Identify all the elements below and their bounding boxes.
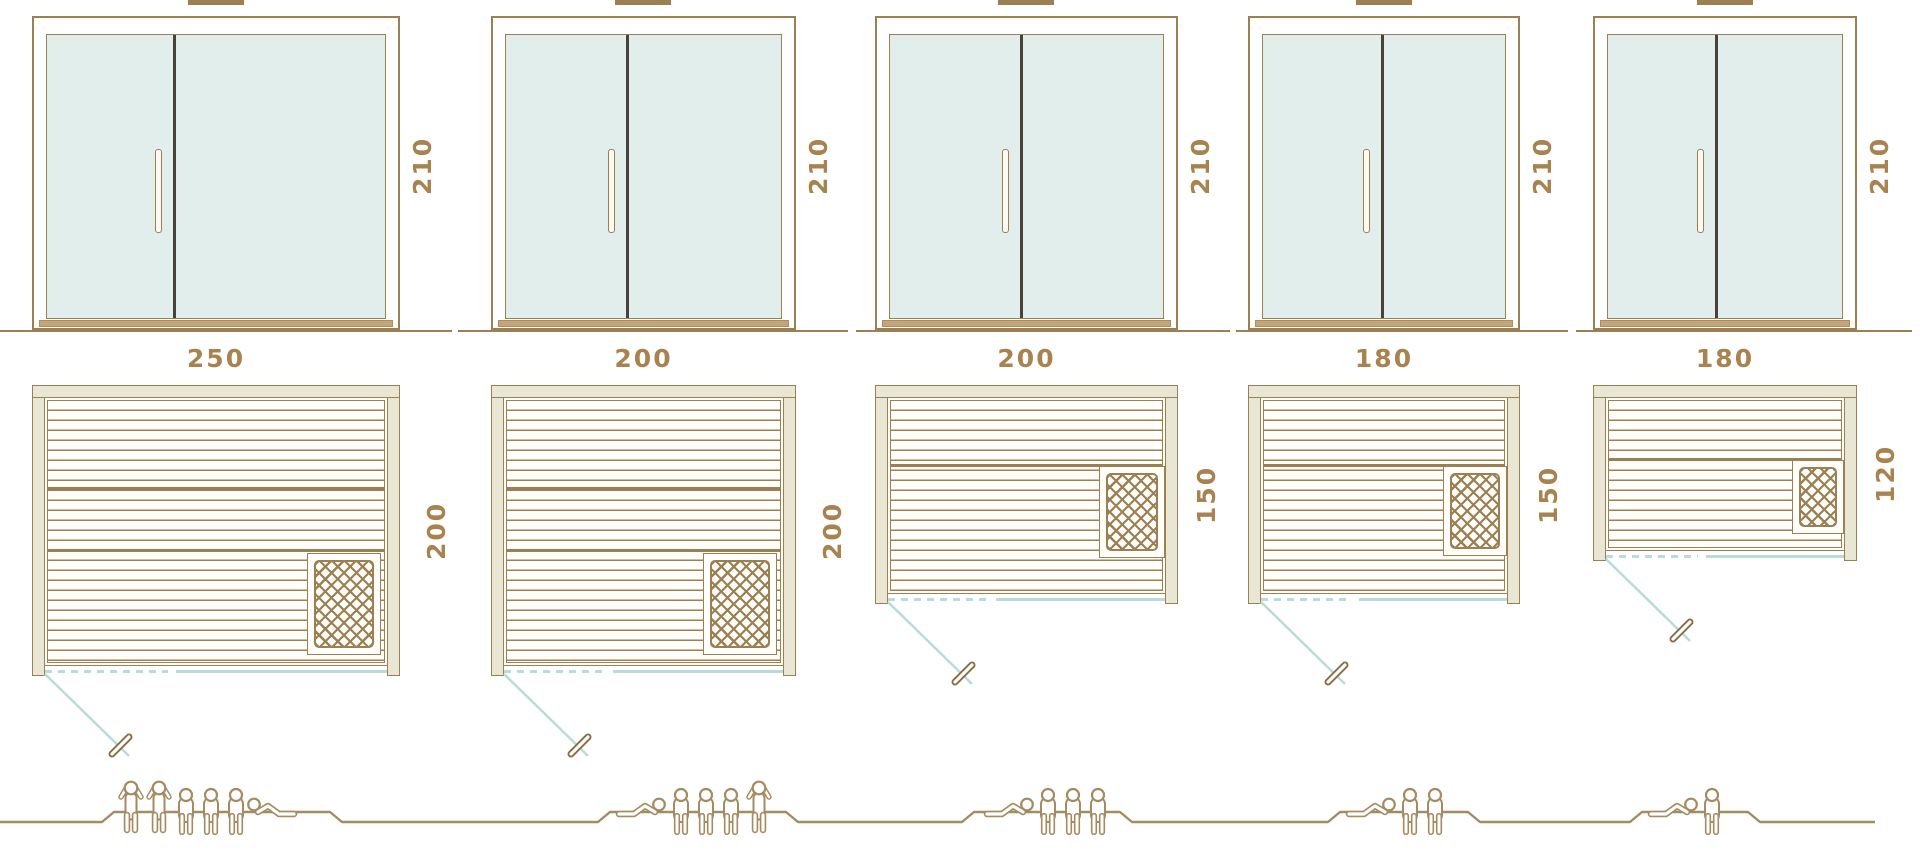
wall-right xyxy=(1507,385,1520,604)
wall-right xyxy=(387,385,400,676)
wall-right xyxy=(1844,385,1857,561)
person-sitting-icon xyxy=(700,789,712,832)
glass-double-door xyxy=(46,34,386,319)
fixed-glass-line xyxy=(176,670,387,673)
heater-grid-icon xyxy=(1450,473,1500,549)
width-label: 180 xyxy=(1355,344,1413,373)
door-handle-icon xyxy=(155,149,162,233)
sauna-column-3: 210 200 xyxy=(875,0,1178,856)
person-sitting-icon xyxy=(1042,789,1054,832)
person-sitting-icon xyxy=(1404,789,1416,832)
heater xyxy=(1099,466,1165,558)
person-standing-icon xyxy=(149,782,169,830)
vent-cap-icon xyxy=(998,0,1054,5)
depth-label: 120 xyxy=(1871,445,1900,503)
height-dimension: 210 xyxy=(804,118,834,214)
heater xyxy=(307,553,381,655)
sauna-column-2: 210 200 xyxy=(491,0,796,856)
capacity-row xyxy=(0,772,1920,856)
elevation-view xyxy=(1248,16,1520,330)
depth-dimension: 150 xyxy=(1192,447,1222,543)
wall-right xyxy=(1165,385,1178,604)
width-dimension: 180 xyxy=(1248,344,1520,373)
ground-line xyxy=(458,330,848,332)
sauna-column-4: 210 180 xyxy=(1248,0,1520,856)
door-handle-icon xyxy=(1697,149,1704,233)
height-dimension: 210 xyxy=(1865,118,1895,214)
height-dimension: 210 xyxy=(1528,118,1558,214)
plan-view xyxy=(1248,385,1520,606)
door-gap-line xyxy=(1381,35,1384,318)
vent-cap-icon xyxy=(615,0,671,5)
sauna-column-1: 210 250 xyxy=(32,0,400,856)
door-swing xyxy=(1248,594,1408,694)
door-sill xyxy=(39,320,393,327)
person-sitting-icon xyxy=(675,789,687,832)
width-label: 200 xyxy=(614,344,672,373)
plan-view xyxy=(32,385,400,678)
door-swing xyxy=(491,666,651,766)
depth-label: 200 xyxy=(422,502,451,560)
door-gap-line xyxy=(173,35,176,318)
height-label: 210 xyxy=(1186,137,1215,195)
plan-view xyxy=(491,385,796,678)
person-standing-icon xyxy=(749,782,769,830)
sauna-column-5: 210 180 xyxy=(1593,0,1857,856)
depth-dimension: 200 xyxy=(422,483,452,579)
height-dimension: 210 xyxy=(1186,118,1216,214)
height-label: 210 xyxy=(804,137,833,195)
heater xyxy=(1792,460,1844,534)
width-dimension: 250 xyxy=(32,344,400,373)
elevation-view xyxy=(875,16,1178,330)
door-handle-icon xyxy=(608,149,615,233)
plan-interior xyxy=(1605,397,1845,551)
depth-label: 150 xyxy=(1192,466,1221,524)
door-gap-line xyxy=(626,35,629,318)
width-label: 180 xyxy=(1696,344,1754,373)
plan-interior xyxy=(1260,397,1508,594)
vent-cap-icon xyxy=(1356,0,1412,5)
person-sitting-icon xyxy=(205,789,217,832)
depth-dimension: 200 xyxy=(818,483,848,579)
person-sitting-icon xyxy=(1706,789,1718,832)
width-dimension: 200 xyxy=(875,344,1178,373)
width-label: 200 xyxy=(997,344,1055,373)
ground-line xyxy=(0,330,452,332)
depth-label: 200 xyxy=(818,502,847,560)
person-sitting-icon xyxy=(1429,789,1441,832)
ground-line xyxy=(1576,330,1912,332)
glass-double-door xyxy=(889,34,1164,319)
heater-grid-icon xyxy=(314,560,374,648)
heater xyxy=(1443,466,1507,556)
person-reclining-icon xyxy=(1651,799,1697,814)
depth-dimension: 120 xyxy=(1871,426,1901,522)
ground-line xyxy=(1236,330,1568,332)
plan-interior xyxy=(503,397,784,666)
heater xyxy=(703,553,777,655)
heater-grid-icon xyxy=(1799,467,1837,527)
person-sitting-icon xyxy=(725,789,737,832)
person-reclining-icon xyxy=(987,799,1033,814)
wall-right xyxy=(783,385,796,676)
elevation-view xyxy=(491,16,796,330)
door-swing xyxy=(32,666,192,766)
door-sill xyxy=(1600,320,1850,327)
door-gap-line xyxy=(1020,35,1023,318)
door-sill xyxy=(1255,320,1513,327)
door-swing xyxy=(1593,551,1753,651)
door-sill xyxy=(498,320,789,327)
height-label: 210 xyxy=(408,137,437,195)
vent-cap-icon xyxy=(1697,0,1753,5)
door-handle-icon xyxy=(1363,149,1370,233)
height-label: 210 xyxy=(1865,137,1894,195)
door-swing xyxy=(875,594,1035,694)
plan-view xyxy=(875,385,1178,606)
door-sill xyxy=(882,320,1171,327)
width-dimension: 180 xyxy=(1593,344,1857,373)
depth-dimension: 150 xyxy=(1534,447,1564,543)
glass-double-door xyxy=(505,34,782,319)
heater-grid-icon xyxy=(1106,473,1158,551)
person-reclining-icon xyxy=(619,799,665,814)
person-standing-icon xyxy=(121,782,141,830)
person-sitting-icon xyxy=(230,789,242,832)
person-reclining-icon xyxy=(1349,799,1395,814)
depth-label: 150 xyxy=(1534,466,1563,524)
door-gap-line xyxy=(1715,35,1718,318)
plan-interior xyxy=(44,397,388,666)
vent-cap-icon xyxy=(188,0,244,5)
ground-line xyxy=(856,330,1230,332)
person-sitting-icon xyxy=(180,789,192,832)
person-sitting-icon xyxy=(1067,789,1079,832)
person-reclining-icon xyxy=(248,799,294,814)
height-label: 210 xyxy=(1528,137,1557,195)
glass-double-door xyxy=(1262,34,1506,319)
plan-view xyxy=(1593,385,1857,563)
width-dimension: 200 xyxy=(491,344,796,373)
sauna-comparison-diagram: 210 250 xyxy=(0,0,1920,856)
plan-interior xyxy=(887,397,1166,594)
height-dimension: 210 xyxy=(408,118,438,214)
heater-grid-icon xyxy=(710,560,770,648)
glass-double-door xyxy=(1607,34,1843,319)
elevation-view xyxy=(1593,16,1857,330)
person-sitting-icon xyxy=(1092,789,1104,832)
door-handle-icon xyxy=(1002,149,1009,233)
width-label: 250 xyxy=(187,344,245,373)
elevation-view xyxy=(32,16,400,330)
